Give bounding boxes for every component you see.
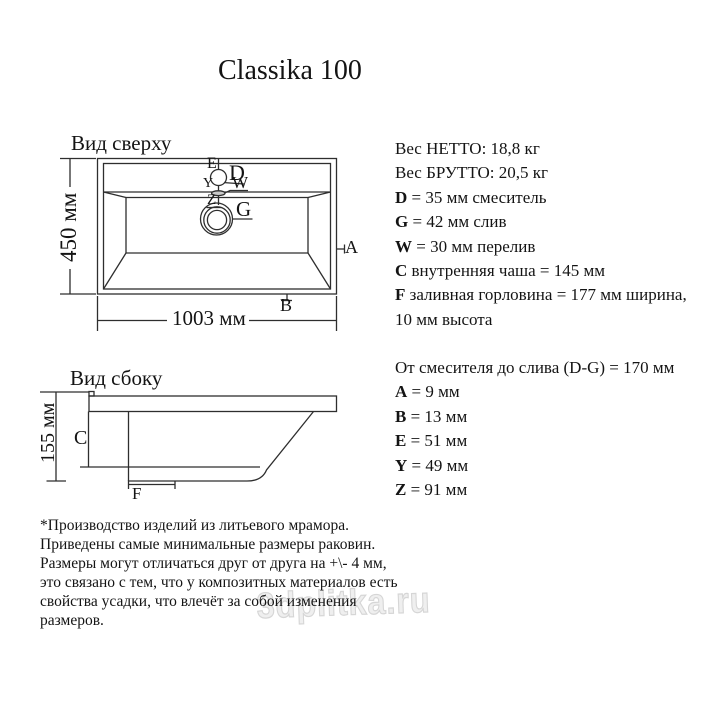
footnote-line: *Производство изделий из литьевого мрамо… <box>40 517 398 536</box>
spec-text: заливная горловина = 177 мм ширина, <box>405 285 686 304</box>
spec-text: = 9 мм <box>407 382 459 401</box>
spec-text: Вес НЕТТО: 18,8 кг <box>395 139 540 158</box>
marker-g-label: G <box>236 199 251 220</box>
spec-row: Y = 49 мм <box>395 454 674 478</box>
spec-text: внутренняя чаша = 145 мм <box>407 261 605 280</box>
spec-text: = 51 мм <box>406 431 467 450</box>
spec-row: Вес БРУТТО: 20,5 кг <box>395 161 687 185</box>
marker-b-label: B <box>280 296 292 314</box>
specs-block-distances: От смесителя до слива (D-G) = 170 мм A =… <box>395 356 674 502</box>
spec-key: D <box>395 188 407 207</box>
specs-block-weights: Вес НЕТТО: 18,8 кг Вес БРУТТО: 20,5 кг D… <box>395 137 687 332</box>
marker-w-label: W <box>232 174 248 191</box>
footnote-line: Размеры могут отличаться друг от друга н… <box>40 555 398 574</box>
marker-f-label: F <box>132 485 141 502</box>
basin-corner-line <box>308 192 331 198</box>
spec-row: Z = 91 мм <box>395 478 674 502</box>
spec-row: G = 42 мм слив <box>395 210 687 234</box>
spec-row: 10 мм высота <box>395 308 687 332</box>
spec-text: = 13 мм <box>406 407 467 426</box>
spec-text: = 91 мм <box>406 480 467 499</box>
footnote-line: свойства усадки, что влечёт за собой изм… <box>40 593 398 612</box>
spec-row: F заливная горловина = 177 мм ширина, <box>395 283 687 307</box>
marker-a-label: A <box>345 238 358 256</box>
footnote: *Производство изделий из литьевого мрамо… <box>40 517 398 630</box>
spec-text: = 30 мм перелив <box>412 237 535 256</box>
rim-notch <box>89 392 94 397</box>
top-view-width-dimension: 1003 мм <box>172 308 246 329</box>
basin-profile-slope <box>247 412 314 482</box>
marker-e-label: E <box>207 156 217 172</box>
side-view-label: Вид сбоку <box>70 368 162 389</box>
spec-key: B <box>395 407 406 426</box>
basin-corner-line <box>104 192 127 198</box>
top-view-height-dimension: 450 мм <box>57 193 80 262</box>
spec-key: E <box>395 431 406 450</box>
footnote-line: размеров. <box>40 612 398 631</box>
spec-key: Y <box>395 456 407 475</box>
spec-text: = 42 мм слив <box>408 212 506 231</box>
marker-z-label: Z <box>207 193 216 208</box>
sink-inner-edge <box>104 164 331 290</box>
spec-key: Z <box>395 480 406 499</box>
marker-c-label: C <box>74 428 87 448</box>
footnote-line: Приведены самые минимальные размеры рако… <box>40 536 398 555</box>
basin-front-wall-line <box>308 253 331 289</box>
drain-hole-inner <box>207 210 226 229</box>
spec-key: C <box>395 261 407 280</box>
spec-key: A <box>395 382 407 401</box>
spec-key: G <box>395 212 408 231</box>
spec-row: B = 13 мм <box>395 405 674 429</box>
page-title: Classika 100 <box>218 57 362 85</box>
spec-sheet-page: 3dplitka.ru Classika 100 Вид сверху Вид … <box>0 0 718 718</box>
spec-text: Вес БРУТТО: 20,5 кг <box>395 163 548 182</box>
spec-row: C внутренняя чаша = 145 мм <box>395 259 687 283</box>
side-view-height-dimension: 155 мм <box>38 403 58 463</box>
spec-row: От смесителя до слива (D-G) = 170 мм <box>395 356 674 380</box>
spec-row: D = 35 мм смеситель <box>395 186 687 210</box>
spec-text: 10 мм высота <box>395 310 492 329</box>
marker-y-label: Y <box>203 177 213 191</box>
sink-outer-edge <box>98 159 337 295</box>
top-view-label: Вид сверху <box>71 133 171 154</box>
spec-row: A = 9 мм <box>395 380 674 404</box>
basin-front-wall-line <box>104 253 127 289</box>
spec-text: От смесителя до слива (D-G) = 170 мм <box>395 358 674 377</box>
spec-row: Вес НЕТТО: 18,8 кг <box>395 137 687 161</box>
footnote-line: это связано с тем, что у композитных мат… <box>40 574 398 593</box>
spec-row: E = 51 мм <box>395 429 674 453</box>
sink-rim-profile <box>89 396 337 412</box>
spec-text: = 49 мм <box>407 456 468 475</box>
spec-text: = 35 мм смеситель <box>407 188 546 207</box>
spec-key: F <box>395 285 405 304</box>
spec-row: W = 30 мм перелив <box>395 235 687 259</box>
spec-key: W <box>395 237 412 256</box>
